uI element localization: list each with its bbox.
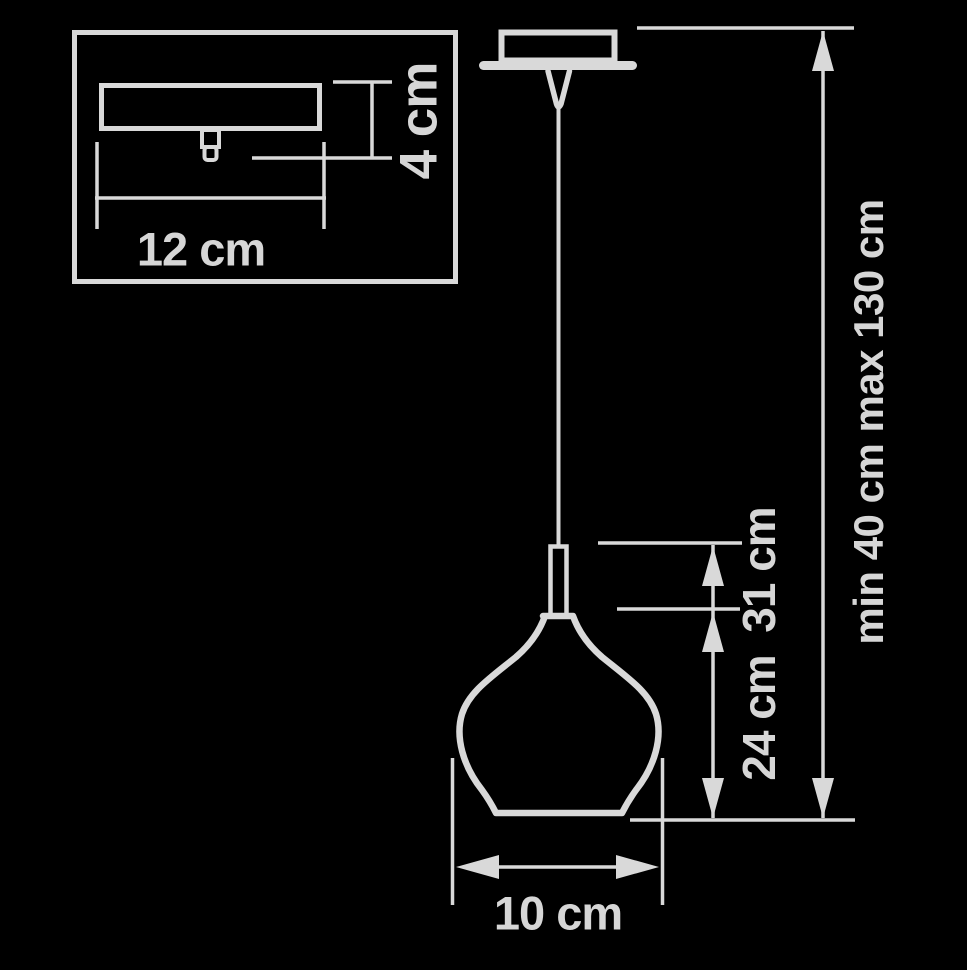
- arrow-up-shade-top: [702, 612, 724, 652]
- canopy-outline: [502, 33, 615, 61]
- suspension-length-label: min 40 cm max 130 cm: [848, 199, 890, 644]
- shade-diameter-label: 10 cm: [494, 890, 622, 937]
- fixture-height-label: 31 cm: [736, 507, 782, 632]
- shade-neck: [551, 547, 567, 616]
- cord-grip: [548, 71, 570, 107]
- arrow-right-diameter: [616, 855, 659, 879]
- mount-body-outline: [102, 86, 320, 129]
- mount-connector-upper: [202, 130, 219, 147]
- inset-width-dimension: [95, 142, 326, 229]
- pendant-lamp-dimension-diagram: 12 cm 4 cm 31 cm 24 cm min 40 cm max 130…: [0, 0, 967, 970]
- mount-connector-lower: [205, 147, 217, 160]
- ceiling-mount: [479, 33, 637, 108]
- shade-height-label: 24 cm: [736, 655, 782, 780]
- arrow-down-suspension: [812, 778, 834, 818]
- arrow-up-ceiling: [812, 31, 834, 71]
- mount-height-label: 4 cm: [393, 63, 446, 180]
- shade-outline: [459, 616, 658, 813]
- arrow-down-shade-bottom: [702, 778, 724, 818]
- ceiling-plate: [479, 61, 637, 70]
- arrow-up-fixture-top: [702, 546, 724, 586]
- diagram-drawing: [0, 0, 967, 970]
- mount-width-label: 12 cm: [137, 226, 265, 273]
- arrow-left-diameter: [456, 855, 499, 879]
- lamp-shade: [459, 547, 658, 814]
